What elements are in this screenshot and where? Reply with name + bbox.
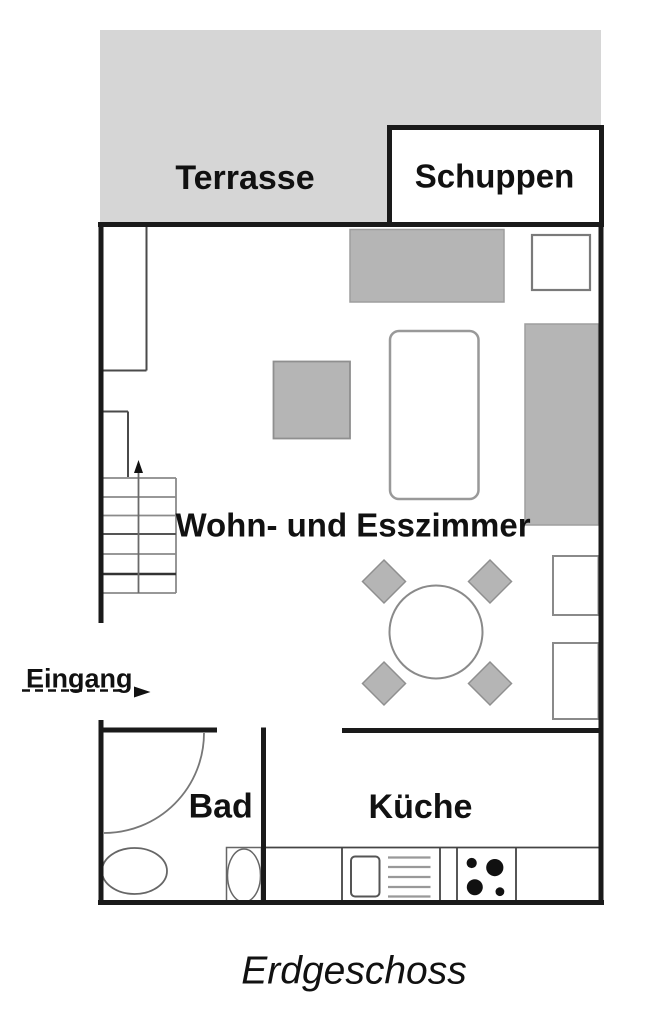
svg-text:Erdgeschoss: Erdgeschoss: [241, 950, 466, 993]
svg-text:Bad: Bad: [189, 788, 253, 826]
svg-text:Schuppen: Schuppen: [415, 158, 575, 195]
svg-text:Wohn- und Esszimmer: Wohn- und Esszimmer: [175, 507, 530, 544]
svg-text:Terrasse: Terrasse: [175, 159, 314, 197]
svg-text:Küche: Küche: [369, 788, 473, 826]
svg-text:Eingang: Eingang: [26, 664, 133, 694]
